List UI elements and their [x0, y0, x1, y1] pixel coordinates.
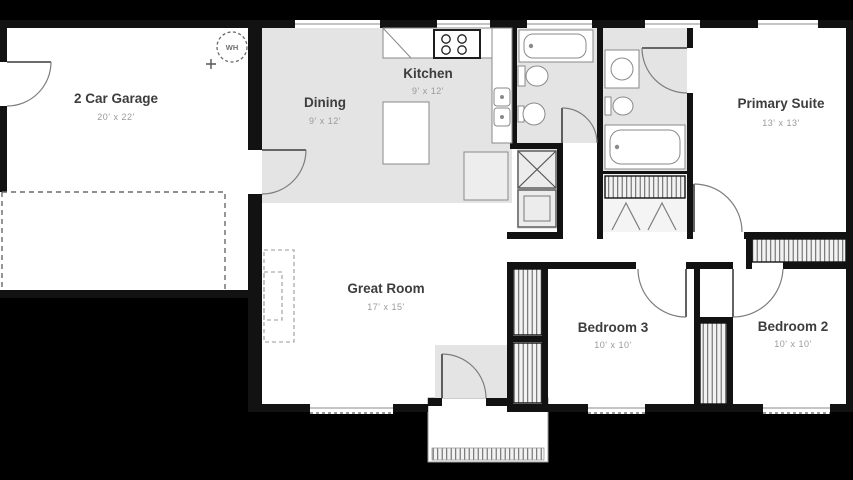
washer-icon [518, 151, 556, 188]
window-icon [588, 404, 645, 414]
room-dims-garage: 20' x 22' [97, 112, 134, 122]
closet-rod-hatch [752, 239, 846, 262]
bathtub-icon [605, 125, 685, 169]
room-dims-bedroom-3: 10' x 10' [594, 340, 631, 350]
room-label-bedroom-3: Bedroom 3 [578, 320, 649, 335]
window-icon [527, 20, 592, 28]
window-icon [758, 20, 818, 28]
lavatory-sink-icon [518, 103, 545, 125]
floor-plan: WH [0, 0, 853, 480]
room-label-dining: Dining [304, 95, 346, 110]
room-dims-dining: 9' x 12' [309, 116, 341, 126]
toilet-icon [605, 97, 633, 115]
closet-rod-hatch [513, 343, 542, 403]
room-label-bedroom-2: Bedroom 2 [758, 319, 829, 334]
room-label-kitchen: Kitchen [403, 66, 453, 81]
entry-floor [435, 345, 507, 398]
floor-plan-canvas: WH [0, 0, 853, 480]
lavatory-sink-icon [605, 50, 639, 88]
kitchen-island [383, 102, 429, 164]
room-dims-bedroom-2: 10' x 10' [774, 339, 811, 349]
window-icon [645, 20, 700, 28]
room-dims-primary-suite: 13' x 13' [762, 118, 799, 128]
bathtub-icon [519, 30, 593, 62]
room-dims-great-room: 17' x 15' [367, 302, 404, 312]
porch-decking [432, 448, 544, 460]
water-heater-label: WH [226, 43, 239, 52]
window-icon [437, 20, 490, 28]
closet-rod-hatch [605, 176, 685, 198]
window-icon [763, 404, 830, 414]
room-label-primary-suite: Primary Suite [737, 96, 825, 111]
closet-rod-hatch [513, 269, 542, 335]
garage-slab [0, 28, 262, 290]
toilet-icon [518, 66, 548, 86]
room-dims-kitchen: 9' x 12' [412, 86, 444, 96]
room-label-great-room: Great Room [347, 281, 424, 296]
room-label-garage: 2 Car Garage [74, 91, 159, 106]
range-icon [434, 30, 480, 58]
dryer-icon [518, 190, 556, 227]
window-icon [295, 20, 380, 28]
closet-rod-hatch [700, 323, 727, 404]
refrigerator-icon [464, 152, 508, 200]
window-icon [310, 404, 393, 414]
